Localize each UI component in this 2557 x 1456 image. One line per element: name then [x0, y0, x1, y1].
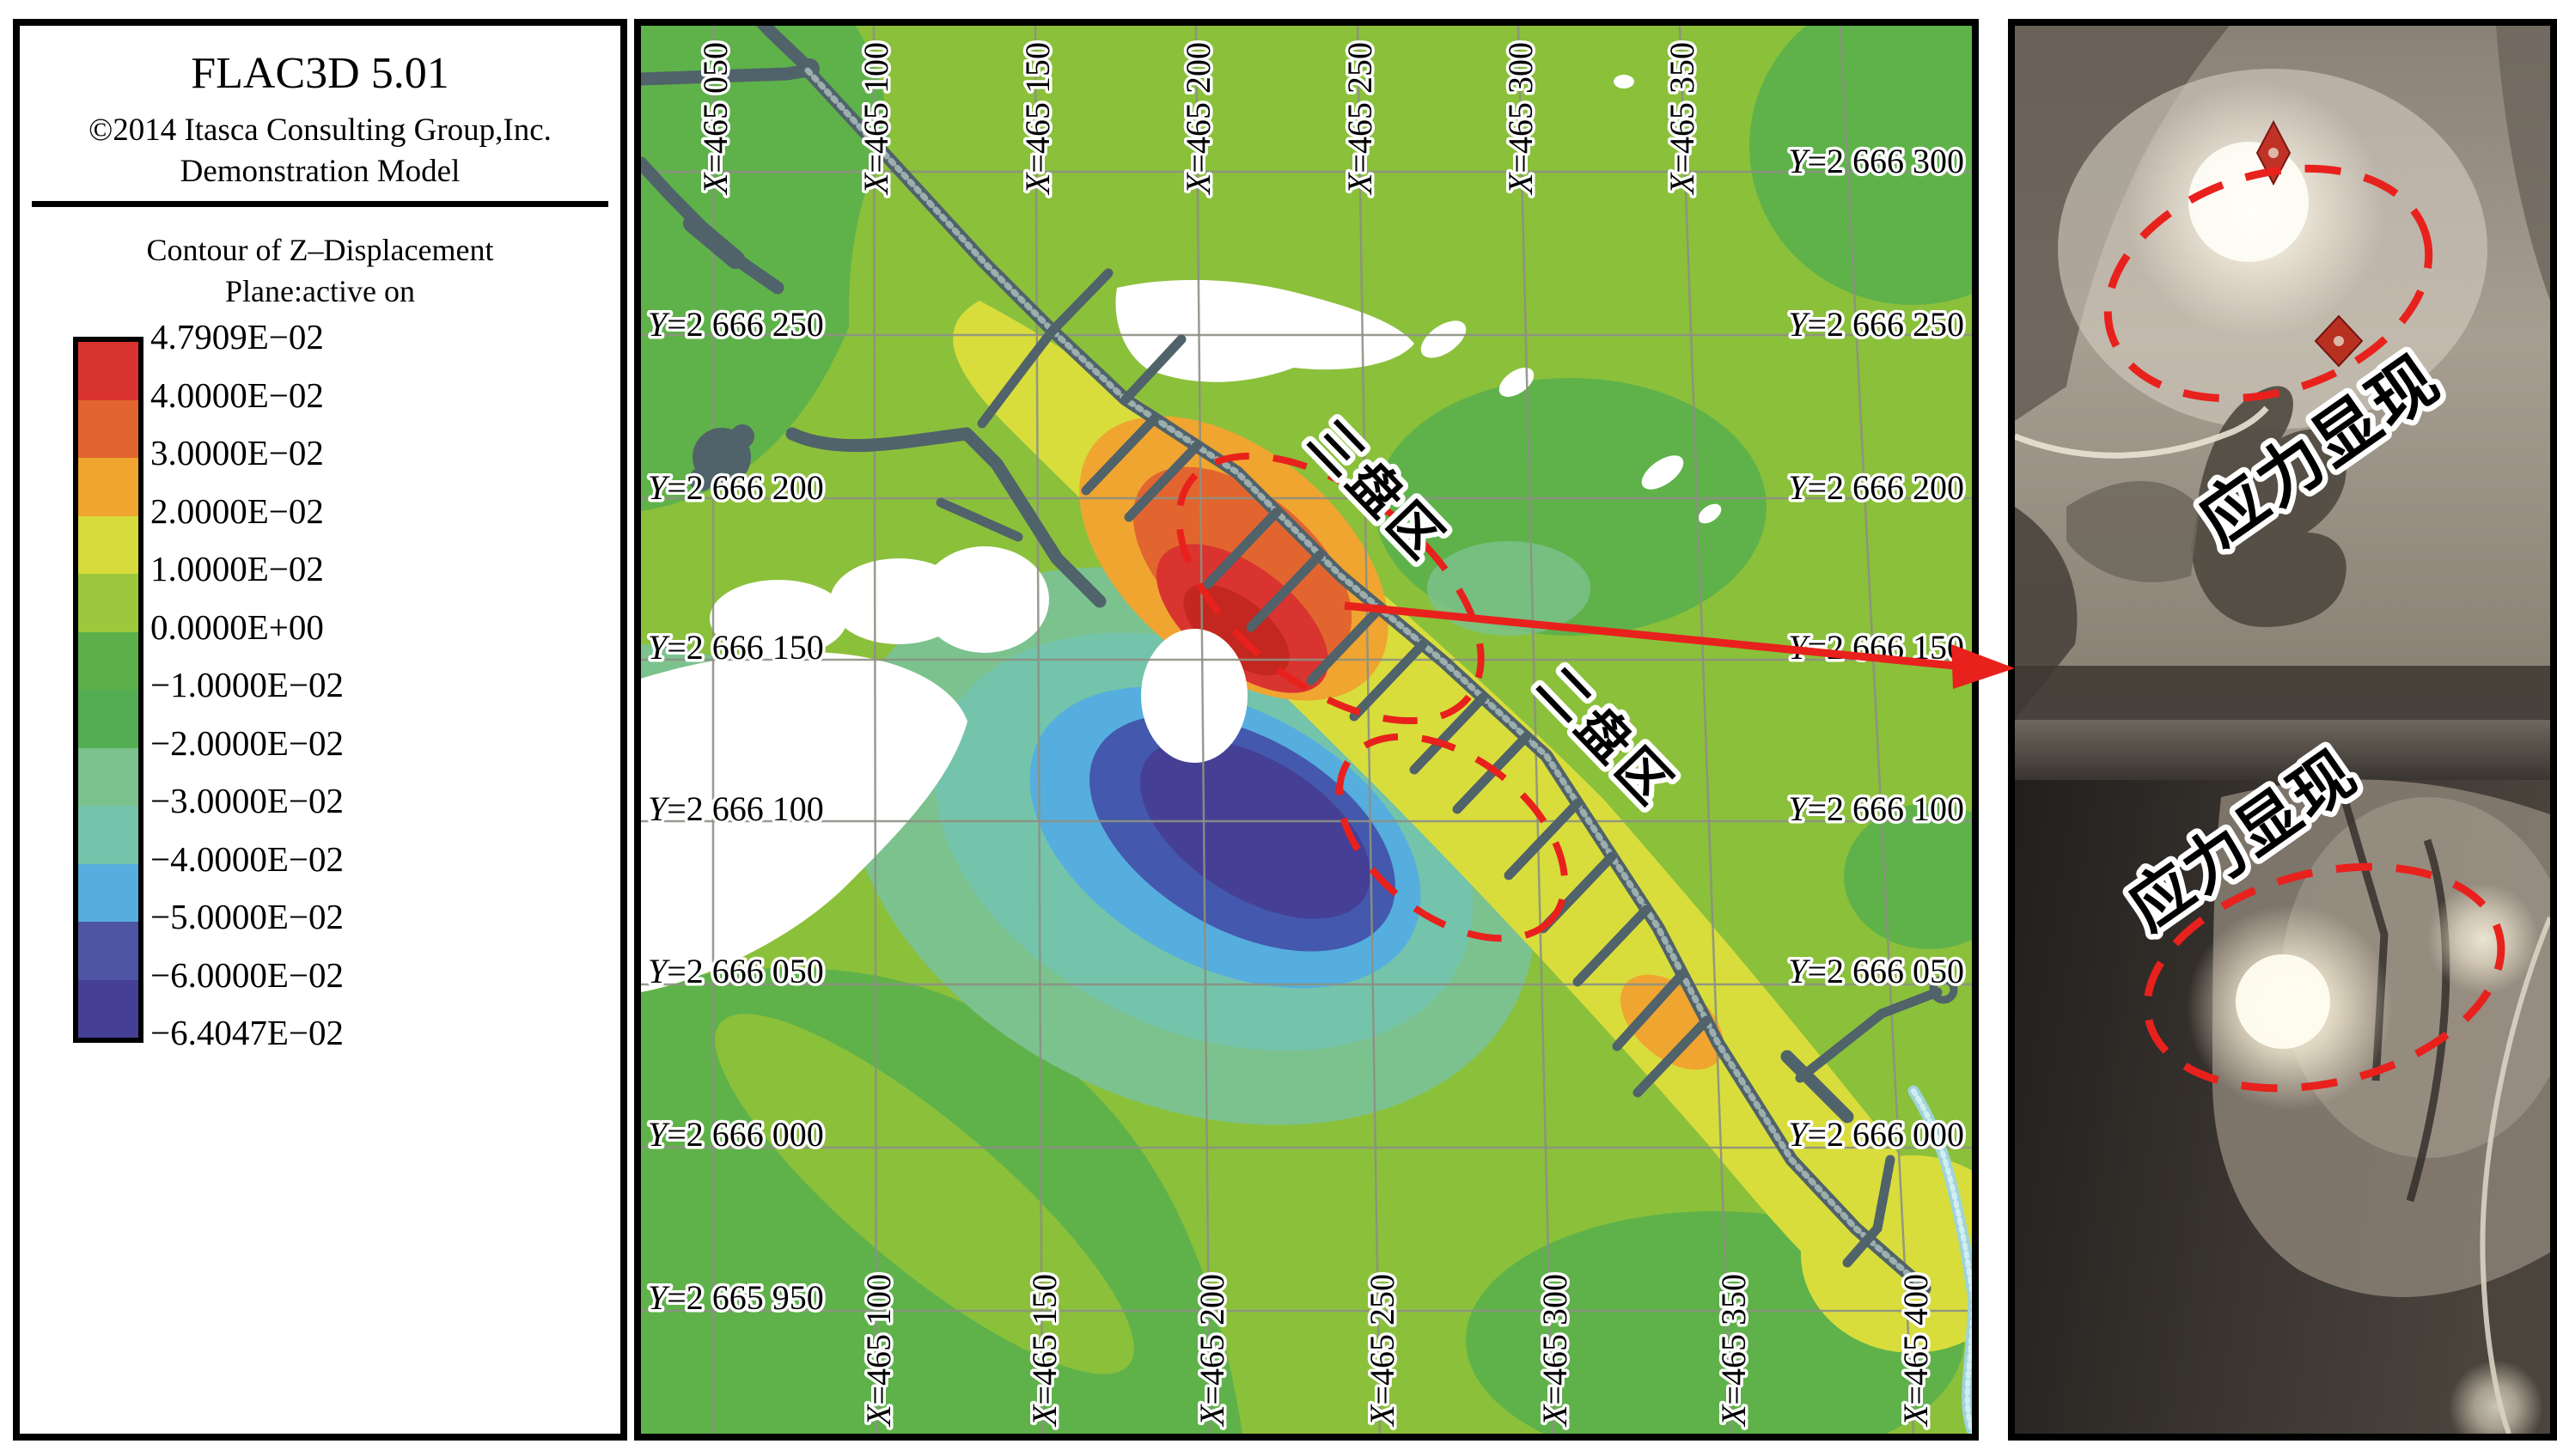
color-segment — [78, 806, 138, 864]
divider-line — [32, 201, 608, 207]
color-segment — [78, 574, 138, 632]
axis-label-right: Y=2 666 250 — [1788, 305, 1964, 344]
copyright-text: ©2014 Itasca Consulting Group,Inc. — [20, 112, 620, 149]
axis-label-left: Y=2 666 050 — [648, 952, 824, 990]
axis-label-left: Y=2 666 200 — [648, 468, 824, 507]
axis-label-top: X=465 200 — [1179, 42, 1217, 196]
photo-bottom: 应力显现 — [2015, 720, 2550, 1434]
axis-label-left: Y=2 666 100 — [648, 789, 824, 828]
axis-label-left: Y=2 666 250 — [648, 305, 824, 344]
axis-label-left: Y=2 665 950 — [648, 1278, 824, 1317]
scale-value: −3.0000E−02 — [150, 780, 344, 821]
axis-label-bottom: X=465 150 — [1025, 1274, 1064, 1428]
axis-label-right: Y=2 666 200 — [1788, 468, 1964, 507]
scale-value: 4.0000E−02 — [150, 375, 324, 416]
color-segment — [78, 632, 138, 691]
axis-label-bottom: X=465 200 — [1193, 1274, 1231, 1428]
axis-label-bottom: X=465 300 — [1535, 1274, 1574, 1428]
color-segment — [78, 458, 138, 516]
color-segment — [78, 980, 138, 1039]
axis-label-left: Y=2 666 150 — [648, 628, 824, 667]
scale-value: 3.0000E−02 — [150, 432, 324, 473]
axis-label-bottom: X=465 350 — [1714, 1274, 1753, 1428]
scale-value: 4.7909E−02 — [150, 316, 324, 357]
photo-panel: 应力显现 应力显现 — [2008, 19, 2557, 1441]
scale-value: −6.4047E−02 — [150, 1012, 344, 1053]
color-segment — [78, 864, 138, 923]
app-title: FLAC3D 5.01 — [20, 48, 620, 99]
axis-label-top: X=465 150 — [1018, 42, 1057, 196]
scale-value: −6.0000E−02 — [150, 954, 344, 996]
axis-label-right: Y=2 666 050 — [1788, 952, 1964, 990]
axis-label-bottom: X=465 400 — [1896, 1274, 1935, 1428]
contour-title: Contour of Z–Displacement — [20, 232, 620, 268]
scale-value: −1.0000E−02 — [150, 664, 344, 705]
axis-label-top: X=465 350 — [1663, 42, 1701, 196]
color-segment — [78, 690, 138, 748]
model-name: Demonstration Model — [20, 153, 620, 190]
color-segment — [78, 342, 138, 400]
legend-panel: FLAC3D 5.01 ©2014 Itasca Consulting Grou… — [13, 19, 627, 1441]
axis-label-right: Y=2 666 100 — [1788, 789, 1964, 828]
scale-value: 2.0000E−02 — [150, 490, 324, 532]
color-segment — [78, 516, 138, 575]
axis-label-top: X=465 250 — [1340, 42, 1379, 196]
scale-value: 0.0000E+00 — [150, 606, 324, 648]
axis-label-top: X=465 050 — [696, 42, 735, 196]
scale-value: 1.0000E−02 — [150, 548, 324, 589]
color-segment — [78, 922, 138, 980]
color-segment — [78, 400, 138, 459]
scale-value: −2.0000E−02 — [150, 722, 344, 764]
axis-label-top: X=465 100 — [857, 42, 895, 196]
axis-label-bottom: X=465 250 — [1363, 1274, 1401, 1428]
axis-label-top: X=465 300 — [1501, 42, 1540, 196]
color-scale: 4.7909E−02 4.0000E−02 3.0000E−02 2.0000E… — [20, 326, 620, 1082]
plane-status: Plane:active on — [20, 273, 620, 309]
scale-value: −4.0000E−02 — [150, 838, 344, 880]
contour-map-panel: X=465 050 X=465 100 X=465 150 X=465 200 … — [634, 19, 1979, 1441]
color-scale-bar — [73, 337, 143, 1043]
axis-label-left: Y=2 666 000 — [648, 1115, 824, 1154]
axis-label-right: Y=2 666 300 — [1788, 142, 1964, 180]
photo-top: 应力显现 — [2015, 26, 2550, 720]
axis-label-right: Y=2 666 000 — [1788, 1115, 1964, 1154]
stress-arrow-icon — [1332, 584, 2028, 696]
contour-map: X=465 050 X=465 100 X=465 150 X=465 200 … — [641, 26, 1972, 1434]
axis-label-bottom: X=465 100 — [859, 1274, 898, 1428]
color-segment — [78, 748, 138, 807]
scale-value: −5.0000E−02 — [150, 896, 344, 937]
